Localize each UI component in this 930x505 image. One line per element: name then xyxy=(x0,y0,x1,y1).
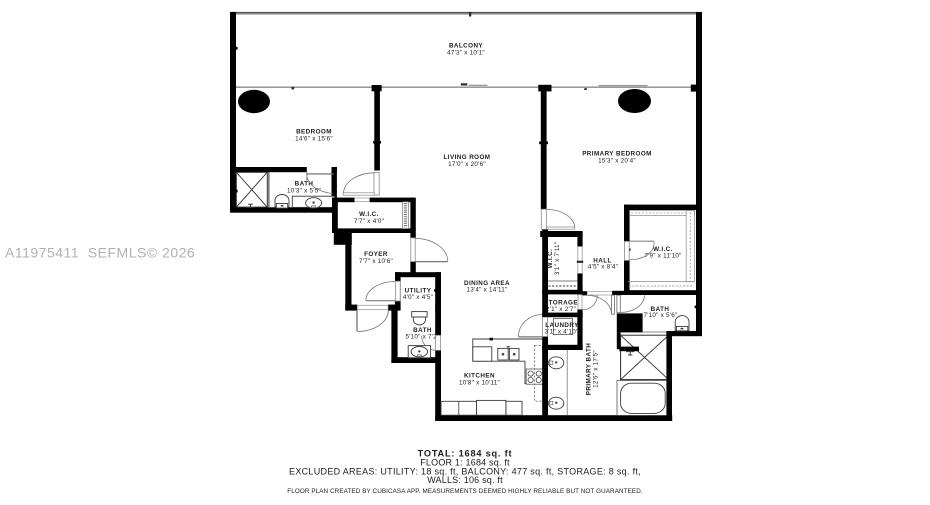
svg-text:3'1" x 4'10": 3'1" x 4'10" xyxy=(544,329,578,336)
svg-text:7'7" x 10'6": 7'7" x 10'6" xyxy=(359,258,393,265)
svg-text:12'6" x 17'5": 12'6" x 17'5" xyxy=(593,350,600,388)
svg-text:7'9" x 11'10": 7'9" x 11'10" xyxy=(644,253,681,260)
svg-text:BALCONY: BALCONY xyxy=(449,43,483,50)
svg-text:WALLS: 106 sq. ft: WALLS: 106 sq. ft xyxy=(427,475,503,485)
svg-text:PRIMARY BATH: PRIMARY BATH xyxy=(586,343,593,396)
svg-text:4'5" x 8'4": 4'5" x 8'4" xyxy=(588,264,618,271)
svg-text:14'6" x 15'6": 14'6" x 15'6" xyxy=(295,136,333,143)
svg-text:7'10" x 5'6": 7'10" x 5'6" xyxy=(643,312,677,319)
svg-text:47'3" x 10'1": 47'3" x 10'1" xyxy=(447,50,485,57)
svg-text:2'1" x 2'7": 2'1" x 2'7" xyxy=(546,306,576,313)
svg-text:5'10" x 7'2": 5'10" x 7'2" xyxy=(405,334,439,341)
svg-text:A11975411 SEFMLS© 2026: A11975411 SEFMLS© 2026 xyxy=(5,245,195,261)
svg-text:BEDROOM: BEDROOM xyxy=(296,129,332,136)
svg-text:LIVING ROOM: LIVING ROOM xyxy=(444,154,491,161)
svg-text:7'7" x 4'0": 7'7" x 4'0" xyxy=(354,218,384,225)
svg-text:3'1" x 7'11": 3'1" x 7'11" xyxy=(554,242,561,276)
svg-text:15'3" x 20'4": 15'3" x 20'4" xyxy=(598,158,636,165)
svg-text:4'0" x 4'5": 4'0" x 4'5" xyxy=(403,294,433,301)
svg-text:PRIMARY BEDROOM: PRIMARY BEDROOM xyxy=(582,151,652,158)
svg-text:W.I.C.: W.I.C. xyxy=(547,249,554,269)
svg-text:17'0" x 20'6": 17'0" x 20'6" xyxy=(448,161,486,168)
svg-text:FLOOR PLAN CREATED BY CUBICASA: FLOOR PLAN CREATED BY CUBICASA APP. MEAS… xyxy=(287,488,643,495)
svg-text:10'8" x 10'11": 10'8" x 10'11" xyxy=(459,379,500,386)
svg-text:13'4" x 14'11": 13'4" x 14'11" xyxy=(466,287,507,294)
